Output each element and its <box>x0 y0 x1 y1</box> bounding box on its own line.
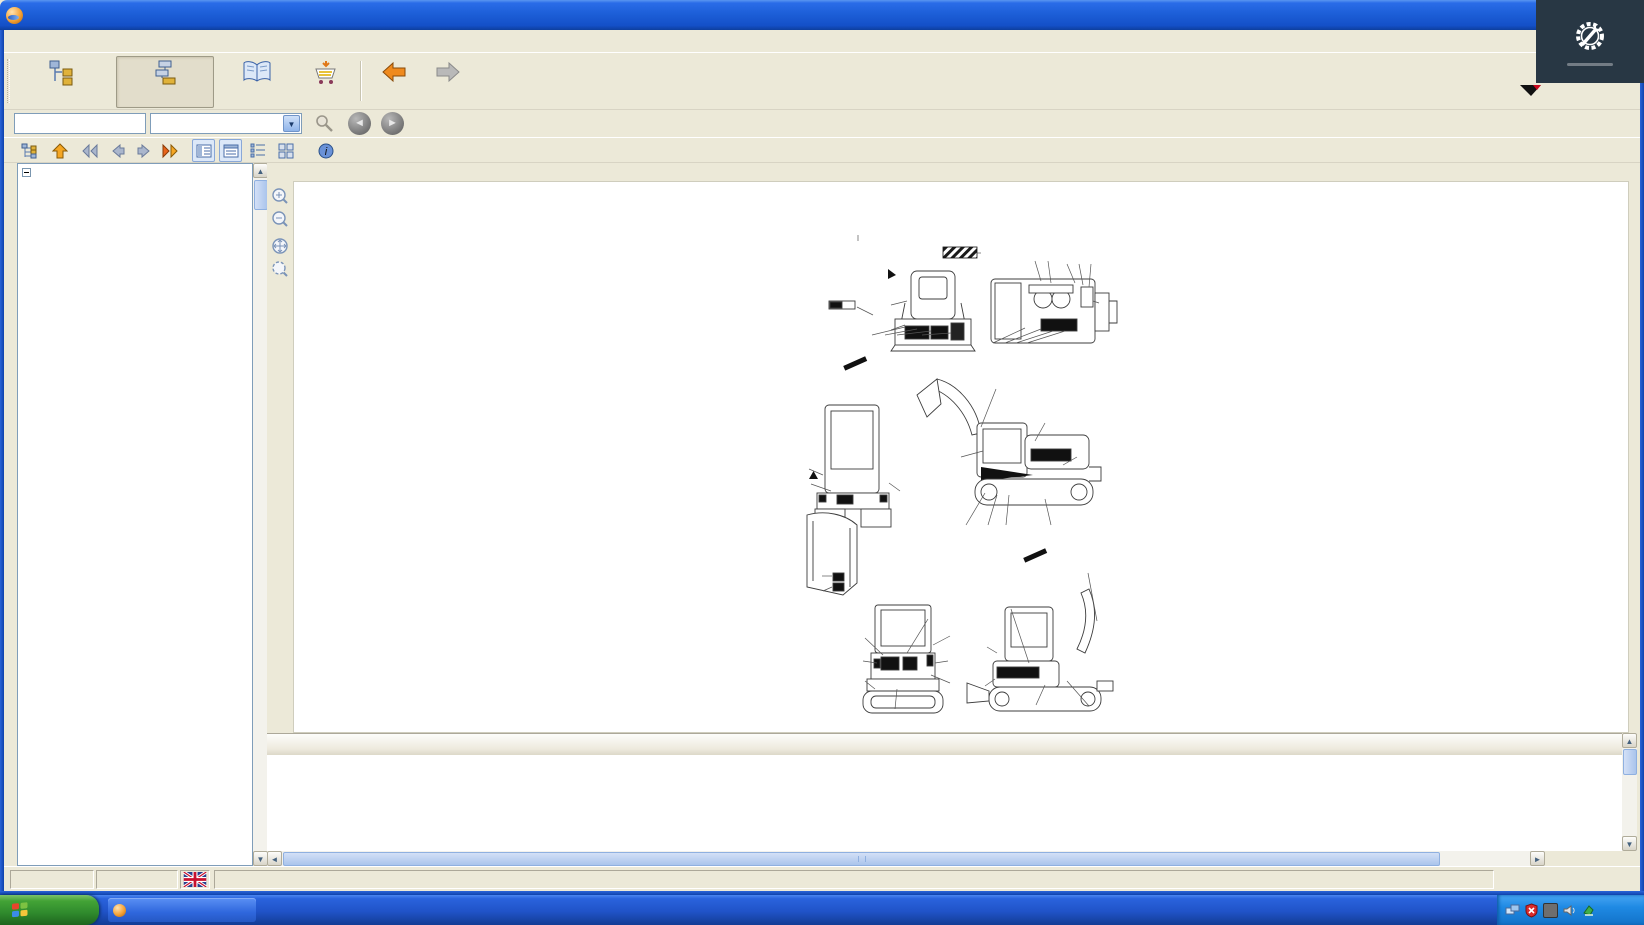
view-rows-toggle[interactable] <box>219 139 242 162</box>
search-type-combo[interactable]: ▼ <box>150 113 302 134</box>
volume-icon[interactable] <box>1562 903 1577 918</box>
collapse-icon[interactable] <box>22 168 31 177</box>
stripe-label-sample <box>1023 548 1047 562</box>
hatched-label-bar <box>943 247 977 258</box>
watermark-brand-box <box>1536 0 1644 83</box>
next-button[interactable] <box>422 56 474 108</box>
tree-structure-icon <box>21 143 39 159</box>
eject-device-icon[interactable] <box>1581 903 1596 918</box>
uk-flag-icon <box>183 872 207 887</box>
yanmar-logo <box>1519 81 1644 99</box>
back-button[interactable] <box>368 56 420 108</box>
status-bar <box>4 866 1640 891</box>
arrow-up-icon <box>52 143 68 159</box>
search-row: ▼ ◄ ► <box>4 110 1640 138</box>
network-icon[interactable] <box>1505 903 1520 918</box>
arrow-right-icon <box>136 143 152 159</box>
tree-scroll-down-button[interactable]: ▼ <box>253 851 268 866</box>
content-header <box>267 163 1640 181</box>
zoom-out-button[interactable] <box>270 209 290 229</box>
taskbar <box>0 895 1644 925</box>
arrow-left-icon <box>110 143 126 159</box>
menu-bar <box>4 30 1640 53</box>
parts-diagram <box>745 183 1145 735</box>
zoom-toolbar <box>267 181 293 733</box>
app-icon <box>6 7 23 24</box>
zoom-selection-button[interactable] <box>270 259 290 279</box>
parts-tree-panel <box>17 163 253 866</box>
zoom-in-button[interactable] <box>270 186 290 206</box>
pan-button[interactable] <box>270 236 290 256</box>
info-icon: i <box>318 143 334 159</box>
main-selection-button[interactable] <box>14 56 110 108</box>
vmware-icon[interactable] <box>1543 903 1558 918</box>
table-scrollbar-thumb[interactable] <box>1623 749 1637 775</box>
security-shield-icon[interactable] <box>1524 903 1539 918</box>
main-selection-icon <box>47 60 77 86</box>
catalogue-of-parts-button[interactable] <box>116 56 214 108</box>
zoom-out-icon <box>271 210 289 228</box>
main-toolbar <box>4 53 1640 110</box>
toolbar-separator <box>360 61 362 101</box>
status-time <box>10 870 94 889</box>
windows-logo-icon <box>10 900 30 920</box>
previous-page-button[interactable] <box>106 139 129 162</box>
stripe-label-sample <box>843 356 867 370</box>
pan-icon <box>271 237 289 255</box>
status-date <box>96 870 178 889</box>
double-arrow-right-icon <box>161 143 179 159</box>
order-button[interactable] <box>300 56 352 108</box>
tree-scrollbar[interactable] <box>253 163 268 866</box>
tree-scrollbar-thumb[interactable] <box>254 180 268 210</box>
next-arrow-icon <box>433 60 463 86</box>
view-list-icon <box>250 143 266 159</box>
chevron-down-icon[interactable]: ▼ <box>283 115 300 132</box>
view-list-button[interactable] <box>246 139 269 162</box>
next-page-button[interactable] <box>132 139 155 162</box>
view-details-icon <box>196 143 212 159</box>
search-button[interactable] <box>312 113 336 135</box>
table-h-scrollbar-thumb[interactable] <box>283 852 1440 866</box>
first-page-button[interactable] <box>78 139 101 162</box>
title-bar <box>0 0 1644 30</box>
info-button[interactable]: i <box>314 139 337 162</box>
view-rows-icon <box>223 143 239 159</box>
back-arrow-icon <box>379 60 409 86</box>
language-flag[interactable] <box>180 870 210 889</box>
double-arrow-left-icon <box>81 143 99 159</box>
navigation-toolbar: i <box>4 138 1640 163</box>
brand-subtitle-line <box>1567 63 1613 66</box>
parts-table <box>267 733 1622 851</box>
tree-scroll-up-button[interactable]: ▲ <box>253 163 268 178</box>
tree-root[interactable] <box>18 164 252 181</box>
yanmar-flag-icon <box>1519 83 1543 98</box>
tree-structure-button[interactable] <box>18 139 41 162</box>
start-button[interactable] <box>0 895 99 925</box>
level-up-button[interactable] <box>48 139 71 162</box>
gear-wrench-logo-icon <box>1570 18 1610 56</box>
last-page-button[interactable] <box>158 139 181 162</box>
history-back-button[interactable]: ◄ <box>348 112 371 135</box>
window-border-right <box>1640 30 1644 895</box>
magnifier-icon <box>314 113 334 133</box>
documentation-icon <box>242 60 272 86</box>
documentation-button[interactable] <box>218 56 296 108</box>
parts-table-header <box>267 734 1622 755</box>
table-scroll-right-button[interactable]: ► <box>1530 851 1545 866</box>
table-scroll-left-button[interactable]: ◄ <box>267 851 282 866</box>
taskbar-task-parts-publisher[interactable] <box>108 898 256 922</box>
search-input[interactable] <box>14 113 146 134</box>
view-grid-icon <box>278 143 294 159</box>
table-scroll-up-button[interactable]: ▲ <box>1622 733 1637 748</box>
machine-drawings <box>807 269 1117 713</box>
catalogue-of-parts-icon <box>150 60 180 86</box>
zoom-selection-icon <box>271 260 289 278</box>
app-icon <box>113 904 126 917</box>
table-scroll-down-button[interactable]: ▼ <box>1622 836 1637 851</box>
toolbar-grip <box>7 59 10 103</box>
view-grid-button[interactable] <box>274 139 297 162</box>
system-tray <box>1497 895 1644 925</box>
status-page <box>214 870 1494 889</box>
zoom-in-icon <box>271 187 289 205</box>
order-cart-icon <box>311 60 341 86</box>
history-forward-button[interactable]: ► <box>381 112 404 135</box>
view-details-toggle[interactable] <box>192 139 215 162</box>
